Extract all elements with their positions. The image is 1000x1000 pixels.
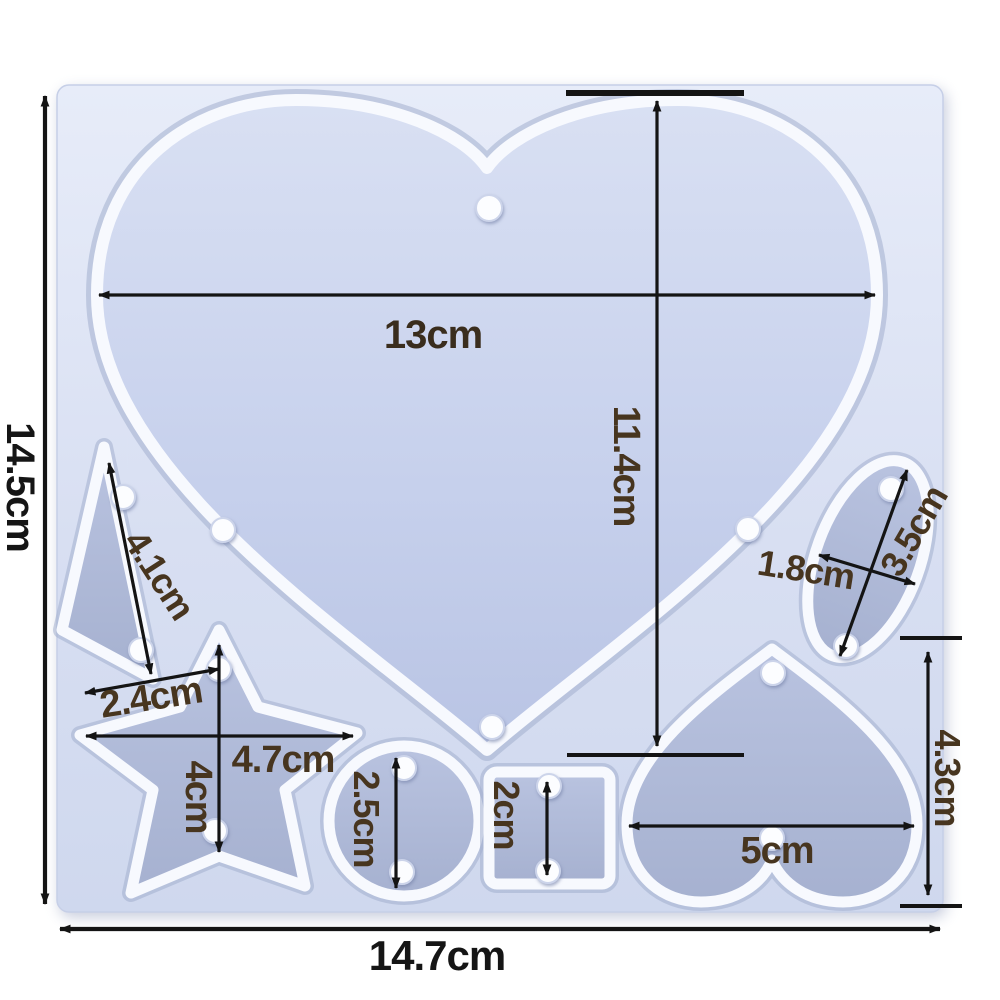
dimension-label-heart-height: 11.4cm [607,406,645,527]
pin [480,715,504,739]
dimension-label-small-heart-width: 5cm [740,832,813,870]
mold-diagram [0,0,1000,1000]
dimension-label-small-heart-height: 4.3cm [929,729,965,826]
dimension-label-square-side: 2cm [488,780,524,849]
dimension-label-circle-diameter: 2.5cm [348,770,384,867]
pin [390,860,414,884]
pin [537,774,561,798]
dimension-label-overall-height: 14.5cm [0,422,40,552]
pin [476,195,502,221]
pin [761,661,785,685]
dimension-label-overall-width: 14.7cm [369,935,505,977]
pin [211,518,235,542]
dimension-label-star-height: 4cm [179,760,217,833]
pin [736,517,760,541]
dimension-label-star-width: 4.7cm [232,741,335,779]
product-photo: 14.5cm 14.7cm 13cm 11.4cm 4.1cm 2.4cm 4.… [0,0,1000,1000]
dimension-label-heart-width: 13cm [384,315,482,355]
